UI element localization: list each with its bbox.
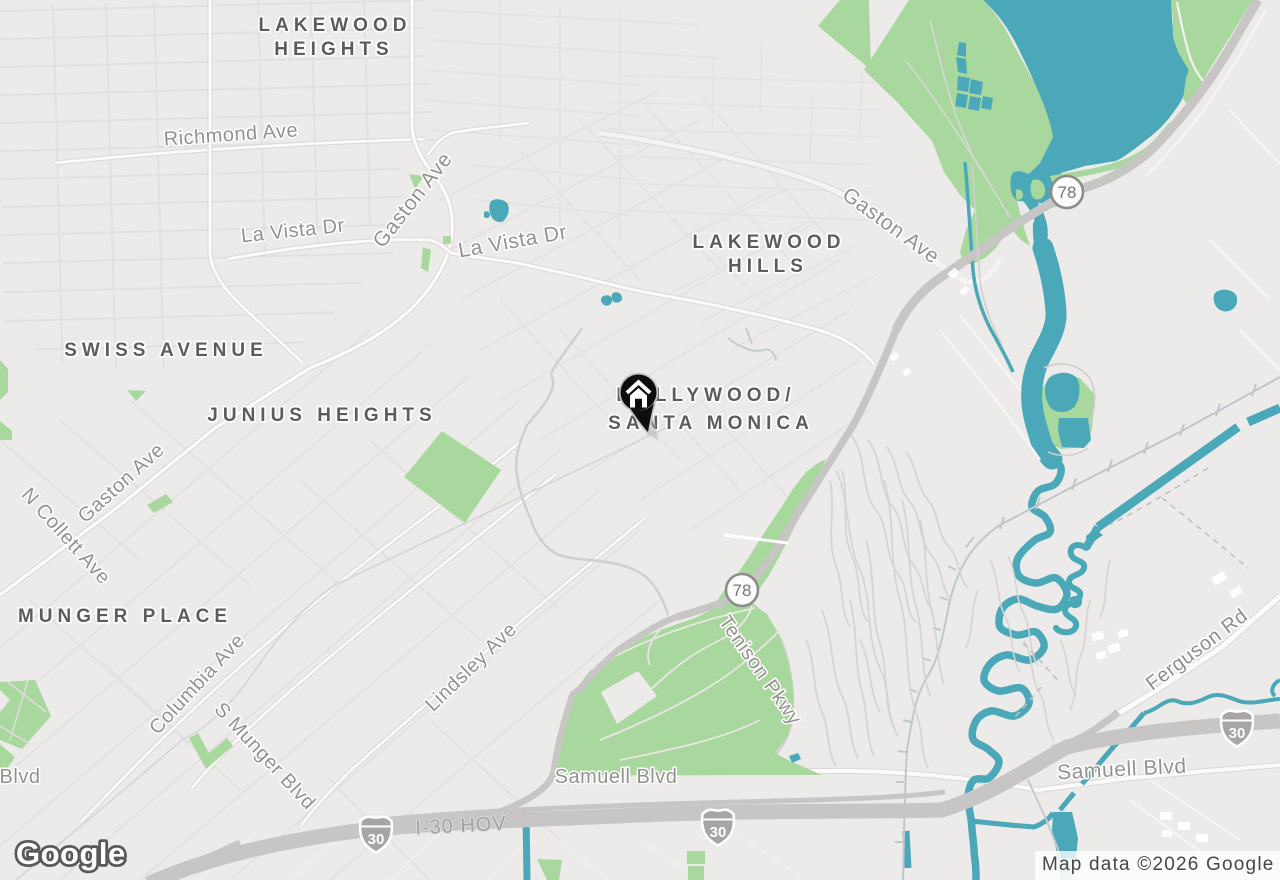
svg-text:Map data ©2026 Google: Map data ©2026 Google <box>1042 854 1275 875</box>
svg-text:JUNIUS HEIGHTS: JUNIUS HEIGHTS <box>207 405 436 426</box>
svg-text:78: 78 <box>1058 183 1077 202</box>
svg-text:HEIGHTS: HEIGHTS <box>274 39 393 60</box>
svg-text:Google: Google <box>16 836 126 871</box>
svg-text:LAKEWOOD: LAKEWOOD <box>259 15 412 36</box>
svg-text:Samuell Blvd: Samuell Blvd <box>555 766 678 788</box>
svg-text:30: 30 <box>368 831 385 848</box>
svg-text:78: 78 <box>733 581 752 600</box>
svg-text:LAKEWOOD: LAKEWOOD <box>693 232 846 253</box>
svg-text:SWISS AVENUE: SWISS AVENUE <box>64 340 268 361</box>
svg-text:MUNGER PLACE: MUNGER PLACE <box>18 606 232 627</box>
svg-text:Blvd: Blvd <box>0 766 40 788</box>
svg-text:30: 30 <box>710 824 727 841</box>
svg-text:30: 30 <box>1229 725 1246 742</box>
svg-text:HILLS: HILLS <box>728 256 808 277</box>
